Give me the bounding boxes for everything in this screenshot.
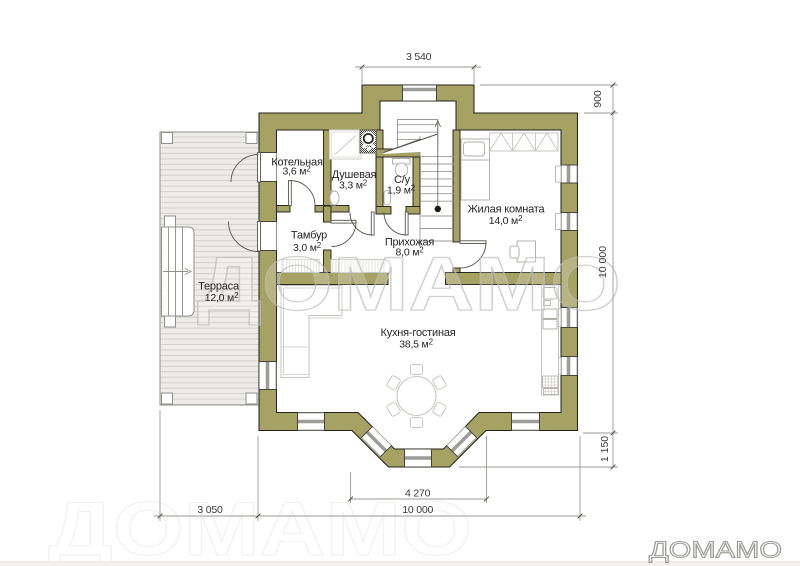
svg-text:12,0 м2: 12,0 м2 bbox=[205, 291, 239, 304]
svg-text:10 000: 10 000 bbox=[402, 504, 433, 516]
svg-text:900: 900 bbox=[592, 90, 604, 108]
svg-text:Жилая комната: Жилая комната bbox=[468, 204, 546, 216]
svg-text:14,0 м2: 14,0 м2 bbox=[489, 214, 523, 227]
svg-text:Тамбур: Тамбур bbox=[291, 230, 327, 242]
svg-text:10 000: 10 000 bbox=[597, 246, 609, 278]
svg-text:1 150: 1 150 bbox=[599, 436, 611, 462]
svg-text:4 270: 4 270 bbox=[405, 488, 431, 500]
svg-text:3 540: 3 540 bbox=[406, 51, 432, 63]
svg-text:ДОМАМО: ДОМАМО bbox=[649, 537, 782, 563]
svg-text:Кухня-гостиная: Кухня-гостиная bbox=[380, 327, 455, 339]
svg-text:3 050: 3 050 bbox=[197, 504, 223, 516]
svg-text:38,5 м2: 38,5 м2 bbox=[399, 338, 433, 351]
